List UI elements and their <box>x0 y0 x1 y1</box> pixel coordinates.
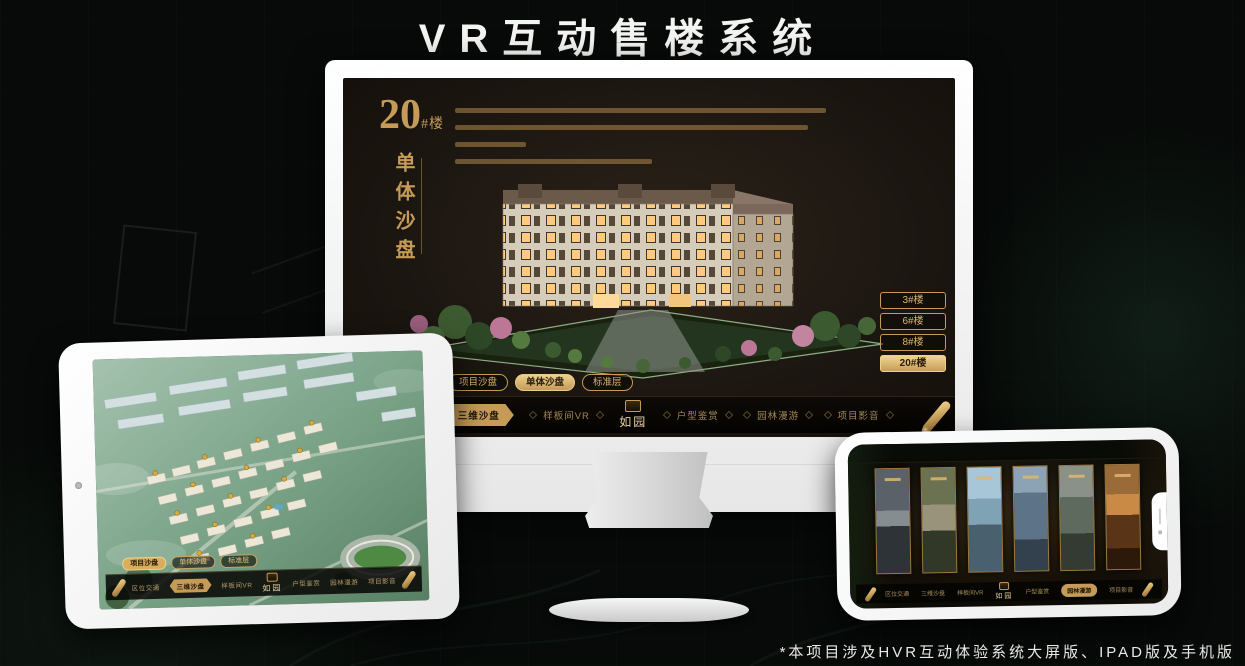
nav-item-project-media[interactable]: 项目影音 <box>829 405 889 425</box>
sandbox-mode-tabs: 项目沙盘 单体沙盘 标准层 <box>448 374 633 391</box>
ipad-tab-single-sandbox[interactable]: 单体沙盘 <box>171 555 215 569</box>
phone-nav-item-project-media[interactable]: 项目影音 <box>1109 585 1133 594</box>
phone-camera-icon <box>1158 530 1162 534</box>
ipad-nav-item-3d-sandbox[interactable]: 三维沙盘 <box>169 578 211 593</box>
ipad-camera-icon <box>75 482 82 489</box>
brand-emblem-icon <box>999 582 1009 590</box>
scene-panel-garden[interactable] <box>1058 464 1095 571</box>
floor-button-6[interactable]: 6#楼 <box>880 313 946 330</box>
scene-panel-lobby[interactable] <box>1104 464 1141 571</box>
background-picture-frame <box>113 224 197 331</box>
scene-panel-strip-row <box>875 464 1142 575</box>
nav-item-unit-plans[interactable]: 户型鉴赏 <box>668 405 728 425</box>
ipad-nav-item-showroom-vr[interactable]: 样板间VR <box>221 579 252 590</box>
floor-button-20[interactable]: 20#楼 <box>880 355 946 372</box>
floor-button-8[interactable]: 8#楼 <box>880 334 946 351</box>
stage: VR互动售楼系统 20#楼 单体沙盘 <box>0 0 1245 666</box>
ipad-tab-standard-floor[interactable]: 标准层 <box>220 554 257 568</box>
phone-nav-item-location[interactable]: 区位交通 <box>885 589 909 598</box>
ipad-tab-project-sandbox[interactable]: 项目沙盘 <box>122 557 166 571</box>
floor-button-group: 3#楼 6#楼 8#楼 20#楼 <box>880 292 946 372</box>
brand-logo-text: 如园 <box>262 582 282 594</box>
brand-emblem-icon <box>625 400 641 412</box>
ipad-nav-item-garden-tour[interactable]: 园林漫游 <box>330 576 358 587</box>
phone-screen: 区位交通 三维沙盘 样板间VR 如园 户型鉴赏 园林漫游 项目影音 <box>848 439 1169 609</box>
phone-nav-item-garden-tour[interactable]: 园林漫游 <box>1061 583 1097 597</box>
ipad-nav-item-location[interactable]: 区位交通 <box>132 581 160 592</box>
brand-logo: 如园 <box>995 582 1013 601</box>
building-number-heading: 20#楼 <box>379 94 444 136</box>
monitor-stand-base <box>549 598 749 622</box>
footnote-text: *本项目涉及HVR互动体验系统大屏版、IPAD版及手机版 <box>780 641 1235 662</box>
brand-logo-text: 如园 <box>619 413 647 430</box>
scene-panel-courtyard[interactable] <box>921 467 958 574</box>
brand-logo: 如园 <box>262 572 283 594</box>
phone-notch <box>1151 492 1167 550</box>
phone-nav-item-3d-sandbox[interactable]: 三维沙盘 <box>921 588 945 597</box>
tab-standard-floor[interactable]: 标准层 <box>582 374 633 391</box>
ipad-nav-item-unit-plans[interactable]: 户型鉴赏 <box>292 577 320 588</box>
scroll-end-icon <box>401 569 417 589</box>
ipad-screen: 项目沙盘 单体沙盘 标准层 区位交通 三维沙盘 样板间VR 如园 户型鉴赏 园林… <box>93 350 430 609</box>
brand-emblem-icon <box>267 573 278 582</box>
nav-item-garden-tour[interactable]: 园林漫游 <box>748 405 808 425</box>
monitor-stand-neck <box>581 452 717 528</box>
scene-panel-interior[interactable] <box>875 468 912 575</box>
building-number-unit: #楼 <box>421 117 444 132</box>
description-text-line <box>455 108 826 113</box>
phone-device: 区位交通 三维沙盘 样板间VR 如园 户型鉴赏 园林漫游 项目影音 <box>834 427 1181 621</box>
page-title: VR互动售楼系统 <box>0 6 1245 64</box>
phone-speaker-icon <box>1158 508 1160 524</box>
scroll-end-icon <box>1141 581 1154 597</box>
scroll-end-icon <box>111 577 127 597</box>
scene-panel-building[interactable] <box>1012 465 1049 572</box>
scroll-end-icon <box>864 586 877 602</box>
description-text-line <box>455 125 808 130</box>
floor-button-3[interactable]: 3#楼 <box>880 292 946 309</box>
tab-project-sandbox[interactable]: 项目沙盘 <box>448 374 508 391</box>
tab-single-sandbox[interactable]: 单体沙盘 <box>515 374 575 391</box>
phone-nav-item-unit-plans[interactable]: 户型鉴赏 <box>1025 586 1049 595</box>
scene-panel-exterior[interactable] <box>966 466 1003 573</box>
ipad-device: 项目沙盘 单体沙盘 标准层 区位交通 三维沙盘 样板间VR 如园 户型鉴赏 园林… <box>58 333 460 630</box>
brand-logo: 如园 <box>619 400 647 430</box>
nav-item-showroom-vr[interactable]: 样板间VR <box>534 405 599 425</box>
building-number: 20 <box>379 92 421 138</box>
phone-nav-item-showroom-vr[interactable]: 样板间VR <box>957 587 983 596</box>
brand-logo-text: 如园 <box>995 591 1013 601</box>
ipad-nav-item-project-media[interactable]: 项目影音 <box>368 575 396 586</box>
